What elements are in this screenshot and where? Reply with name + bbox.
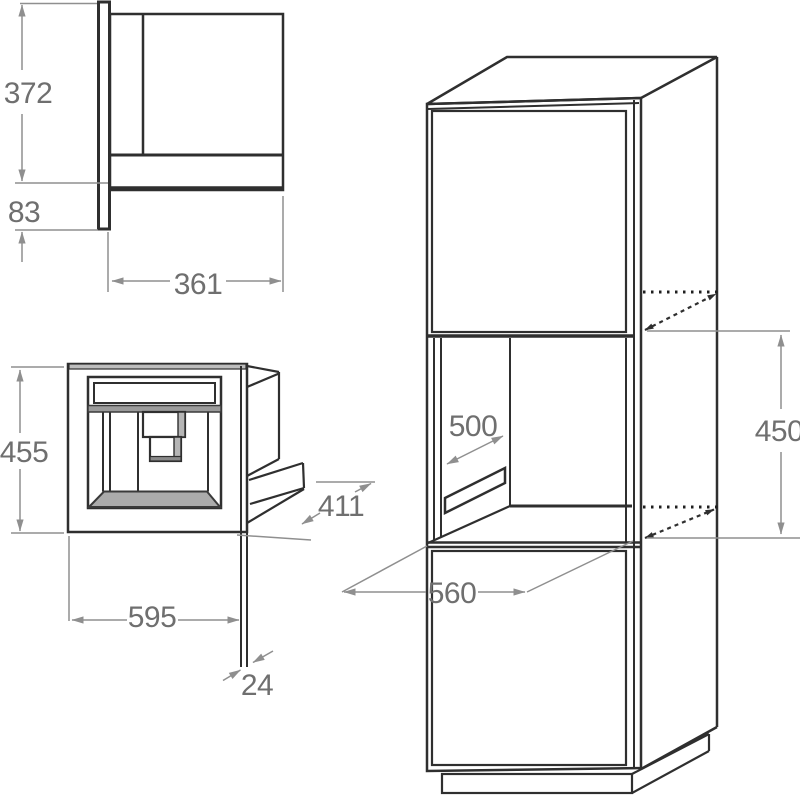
dim-label-appliance-depth: 411 bbox=[318, 490, 364, 523]
front-view: 455 595 24 411 bbox=[0, 364, 375, 702]
dim-label-panel-thickness: 24 bbox=[241, 669, 273, 702]
dim-label-niche-depth: 500 bbox=[449, 410, 498, 443]
cabinet-top-face bbox=[427, 57, 717, 104]
dim-label-appliance-width: 595 bbox=[128, 601, 177, 634]
cabinet-view: 500 450 560 bbox=[342, 57, 800, 793]
diagram-canvas: 372 83 361 bbox=[0, 0, 800, 800]
dim-label-niche-width: 560 bbox=[428, 577, 477, 610]
niche-vent-slot bbox=[445, 468, 505, 513]
side-view: 372 83 361 bbox=[4, 2, 283, 301]
dim-label-niche-height: 450 bbox=[755, 415, 800, 448]
dim-label-appliance-height: 455 bbox=[0, 436, 48, 469]
machine-side-and-tray bbox=[247, 366, 304, 523]
dim-label-body-height: 372 bbox=[4, 77, 53, 110]
coffee-machine-control-panel bbox=[94, 383, 215, 403]
dim-label-lower-overhang: 83 bbox=[8, 196, 40, 229]
cabinet-upper-door bbox=[432, 111, 626, 332]
installation-diagram: 372 83 361 bbox=[0, 0, 800, 800]
cabinet-side-panel bbox=[634, 57, 717, 769]
coffee-spout bbox=[143, 412, 185, 461]
side-view-body bbox=[110, 14, 283, 190]
dim-label-body-depth: 361 bbox=[174, 268, 223, 301]
side-view-front-panel bbox=[99, 2, 110, 229]
niche-projection-lines bbox=[643, 292, 719, 538]
brew-chamber-floor bbox=[89, 492, 220, 508]
